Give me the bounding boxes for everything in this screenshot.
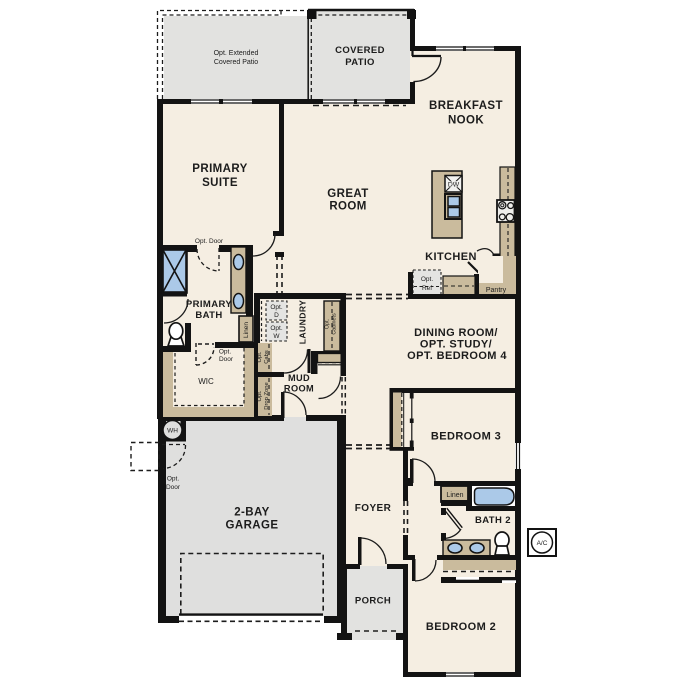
svg-text:Opt. Door: Opt. Door [195,238,224,245]
svg-text:BATH 2: BATH 2 [475,515,511,526]
svg-text:PRIMARY: PRIMARY [192,163,247,175]
svg-text:ROOM: ROOM [329,201,366,213]
svg-text:OPT. BEDROOM 4: OPT. BEDROOM 4 [407,350,507,362]
svg-text:Covered Patio: Covered Patio [214,59,258,66]
svg-text:Cabinets: Cabinets [332,313,338,335]
svg-text:Opt.: Opt. [270,325,282,332]
svg-text:Pantry: Pantry [486,287,507,294]
svg-text:W: W [273,333,280,340]
svg-text:DINING ROOM/: DINING ROOM/ [414,327,498,339]
svg-text:Opt.: Opt. [270,304,282,311]
svg-text:PATIO: PATIO [345,57,375,68]
svg-text:Opt.: Opt. [257,390,263,401]
svg-text:GREAT: GREAT [327,188,368,200]
svg-text:Drop Zone: Drop Zone [264,382,270,409]
svg-text:Door: Door [166,484,181,491]
svg-text:FOYER: FOYER [355,503,392,514]
svg-text:LAUNDRY: LAUNDRY [298,300,308,345]
svg-text:Opt. Extended: Opt. Extended [214,50,259,57]
svg-text:GARAGE: GARAGE [226,520,279,532]
svg-text:BREAKFAST: BREAKFAST [429,100,503,112]
svg-text:BATH: BATH [195,310,222,321]
svg-text:DW: DW [448,182,460,189]
svg-text:Opt.: Opt. [219,349,231,356]
svg-text:2-BAY: 2-BAY [234,507,269,519]
svg-text:SUITE: SUITE [202,177,238,189]
svg-text:KITCHEN: KITCHEN [425,251,477,263]
svg-text:Linen: Linen [446,492,463,499]
svg-text:BEDROOM 2: BEDROOM 2 [426,621,496,633]
svg-text:Cabs: Cabs [264,350,270,364]
svg-text:Ref: Ref [422,285,432,292]
svg-text:WIC: WIC [198,377,214,386]
svg-text:Opt.: Opt. [325,319,331,329]
svg-text:Door: Door [219,356,234,363]
svg-text:NOOK: NOOK [448,115,484,127]
svg-text:PRIMARY: PRIMARY [186,299,233,310]
svg-text:BEDROOM 3: BEDROOM 3 [431,431,501,443]
svg-text:PORCH: PORCH [355,596,391,607]
svg-text:MUD: MUD [288,373,310,383]
svg-text:Opt.: Opt. [421,276,433,283]
svg-text:OPT. STUDY/: OPT. STUDY/ [420,339,492,351]
svg-text:A/C: A/C [537,540,548,547]
svg-text:Opt.: Opt. [167,476,179,483]
svg-text:WH: WH [167,428,178,435]
svg-text:Opt.: Opt. [257,351,263,362]
svg-text:D: D [274,312,279,319]
svg-text:COVERED: COVERED [335,45,385,56]
svg-text:Linen: Linen [243,322,250,338]
